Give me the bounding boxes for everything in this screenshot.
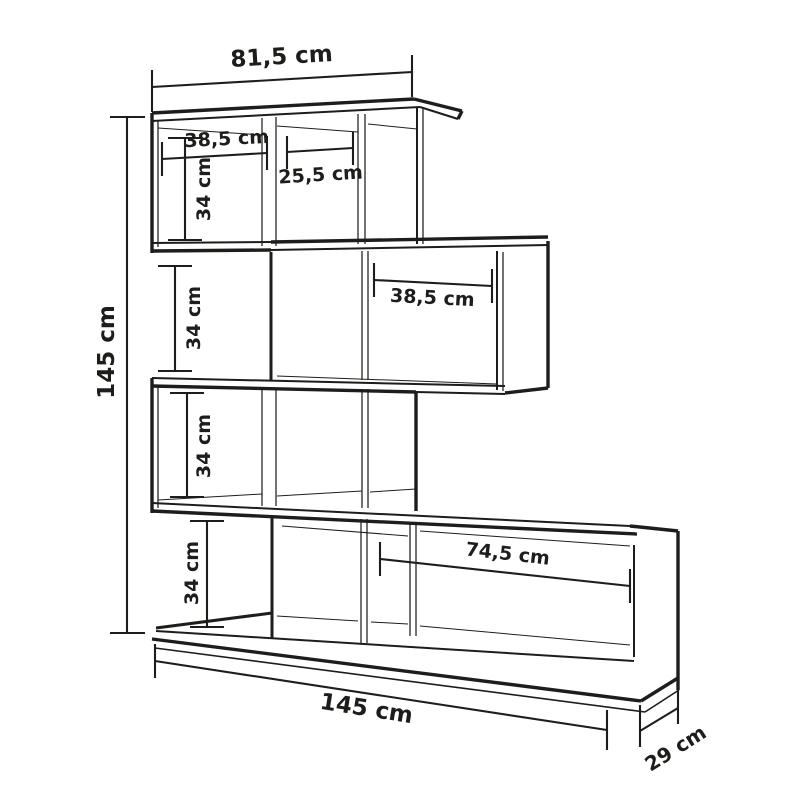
dimension-gap1-height: 34 cm xyxy=(158,266,205,371)
dimension-label-top-width: 81,5 cm xyxy=(230,41,334,73)
edge-line xyxy=(414,99,462,111)
edge-line xyxy=(641,678,678,701)
edge-line xyxy=(156,631,634,661)
plinth-line xyxy=(645,690,679,712)
interior-line xyxy=(282,526,408,536)
shelf-band-1 xyxy=(152,237,548,251)
dimension-label-row2-width: 38,5 cm xyxy=(390,285,476,311)
dim-line xyxy=(287,148,353,152)
interior-line xyxy=(420,626,630,645)
dimension-label-row3-height: 34 cm xyxy=(193,414,215,478)
dimension-label-gap1-height: 34 cm xyxy=(183,286,205,350)
top-shelf-board xyxy=(152,99,462,121)
dimension-label-row1-middle-width: 25,5 cm xyxy=(278,161,364,188)
interior-line xyxy=(156,613,272,628)
edge-line xyxy=(271,245,548,250)
dimension-label-total-height: 145 cm xyxy=(94,305,120,399)
dimension-row1-left-width: 38,5 cm xyxy=(162,126,269,176)
dimension-gap2-height: 34 cm xyxy=(181,521,224,627)
dimension-total-width: 145 cm xyxy=(155,644,607,750)
edge-line xyxy=(271,237,548,242)
diagram-canvas: 81,5 cm 145 cm 38,5 cm 25,5 cm 34 cm 34 … xyxy=(0,0,800,800)
edge-line xyxy=(152,250,271,251)
bookshelf-dimension-diagram: 81,5 cm 145 cm 38,5 cm 25,5 cm 34 cm 34 … xyxy=(0,0,800,800)
base-box xyxy=(152,516,679,712)
dimension-row1-middle-width: 25,5 cm xyxy=(278,132,364,189)
interior-line xyxy=(277,491,362,496)
dimension-label-row1-height: 34 cm xyxy=(193,157,215,221)
edge-line xyxy=(505,388,548,393)
interior-line xyxy=(277,126,358,132)
edge-line xyxy=(152,99,414,113)
edge-line xyxy=(458,111,462,119)
edge-line xyxy=(416,392,505,394)
interior-line xyxy=(277,616,358,621)
interior-line xyxy=(368,124,417,129)
dimension-base-compartment-width: 74,5 cm xyxy=(380,538,630,603)
row3-box xyxy=(152,378,416,513)
dimension-label-total-width: 145 cm xyxy=(318,689,415,729)
dimension-label-depth: 29 cm xyxy=(640,720,710,776)
interior-line xyxy=(370,489,416,492)
edge-line xyxy=(630,526,678,531)
edge-line xyxy=(152,107,420,121)
dimension-label-base-compartment-width: 74,5 cm xyxy=(464,538,551,569)
edge-line xyxy=(152,242,271,243)
edge-line xyxy=(152,639,641,701)
row2-box xyxy=(271,241,548,393)
shelf-band-2 xyxy=(152,378,505,394)
edge-line xyxy=(152,386,416,392)
dimension-total-height: 145 cm xyxy=(94,117,145,633)
dimension-row3-height: 34 cm xyxy=(170,393,215,497)
interior-line xyxy=(371,622,408,624)
dimension-row1-height: 34 cm xyxy=(168,138,215,240)
dimension-label-gap2-height: 34 cm xyxy=(181,541,203,605)
dimension-row2-width: 38,5 cm xyxy=(374,263,492,311)
dim-line xyxy=(152,72,412,87)
